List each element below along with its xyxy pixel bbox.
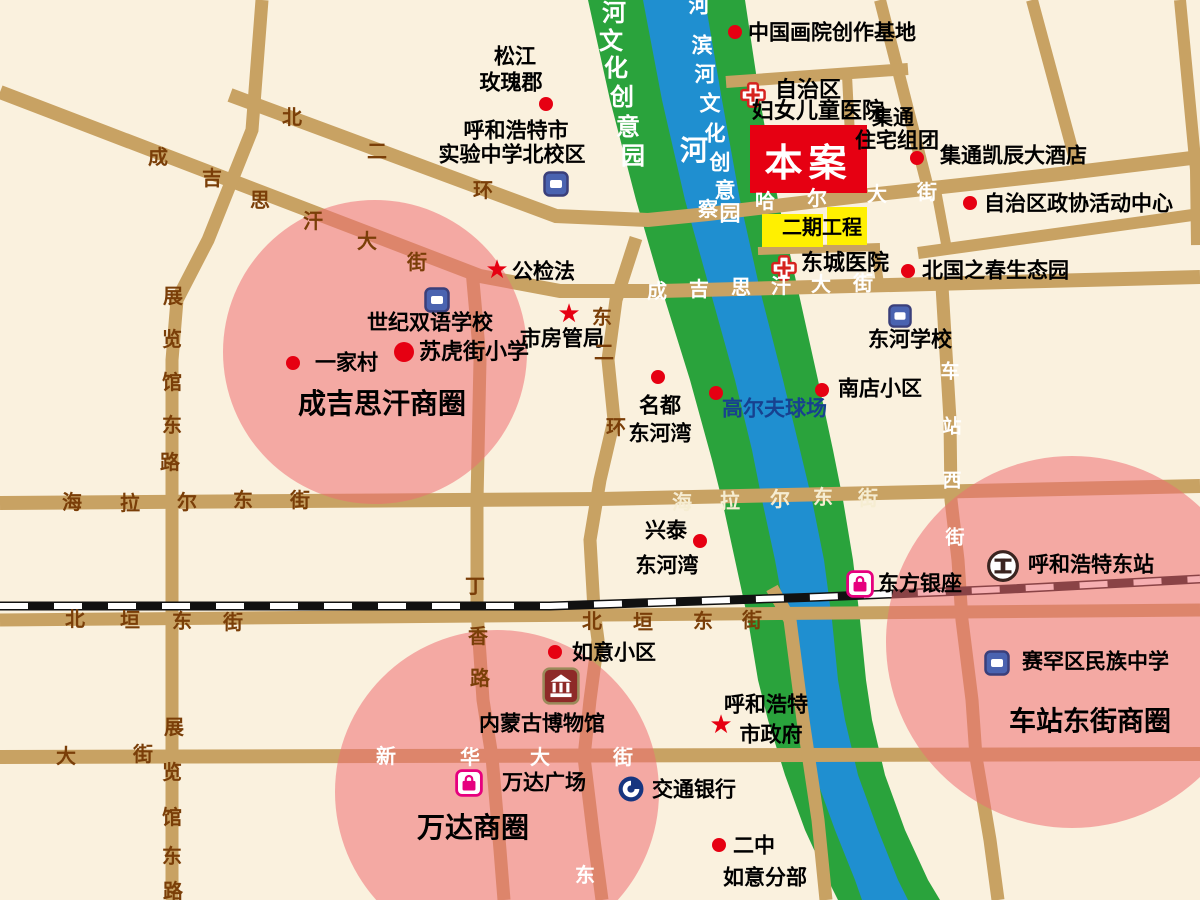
map-label: 东河湾 (636, 556, 699, 577)
map-label: 展 (164, 717, 184, 737)
map-label: 东 (813, 487, 833, 507)
map-label: 拉 (120, 493, 140, 513)
map-label: 新 (376, 746, 396, 766)
map-label: 馆 (162, 807, 182, 827)
star-marker[interactable]: ★ (557, 301, 580, 327)
map-label: 尔 (177, 492, 197, 512)
map-label: 呼和浩特东站 (1028, 555, 1154, 576)
project-site-block[interactable]: 本案 (750, 125, 867, 193)
map-label: 思 (250, 190, 270, 210)
map-label: 住宅组团 (855, 131, 939, 152)
shop-icon[interactable] (846, 570, 874, 598)
map-label: 哈 (755, 191, 775, 211)
poi-dot[interactable] (548, 645, 562, 659)
map-label: 尔 (807, 188, 827, 208)
map-label: 吉 (202, 168, 222, 188)
map-label: 路 (470, 668, 490, 688)
map-label: 路 (160, 452, 180, 472)
shop-icon[interactable] (455, 769, 483, 797)
school-icon[interactable] (424, 287, 450, 313)
poi-dot[interactable] (728, 25, 742, 39)
map-label: 内蒙古博物馆 (479, 714, 605, 735)
map-label: 一家村 (315, 353, 378, 374)
museum-icon (542, 667, 580, 705)
map-label: 尔 (770, 489, 790, 509)
map-label: 市房管局 (520, 329, 604, 350)
map-label: 名都 (639, 396, 681, 417)
map-label: 街 (742, 610, 762, 630)
star-marker[interactable]: ★ (485, 257, 508, 283)
map-label: 交通银行 (652, 780, 736, 801)
map-label: 文 (700, 94, 721, 115)
map-label: 东 (162, 846, 182, 866)
map-label: 呼和浩特市 (464, 121, 569, 142)
map-label: 华 (460, 747, 480, 767)
map-label: 街 (613, 747, 633, 767)
map-label: 二 (594, 342, 614, 362)
map-label: 汗 (771, 276, 791, 296)
map-label: 街 (133, 744, 153, 764)
bank-icon[interactable] (618, 776, 645, 803)
map-label: 街 (945, 529, 964, 548)
map-label: 成 (647, 281, 667, 301)
poi-dot[interactable] (712, 838, 726, 852)
map-label: 东河学校 (868, 330, 952, 351)
map-label: 如意小区 (572, 643, 656, 664)
map-label: 成 (148, 147, 168, 167)
map-label: 大 (56, 746, 76, 766)
museum-icon[interactable] (542, 667, 580, 705)
poi-dot[interactable] (963, 196, 977, 210)
map-label: 园 (720, 204, 741, 225)
map-label: 呼和浩特 (724, 695, 808, 716)
phase2-label: 二期工程 (782, 217, 862, 237)
map-label: 兴泰 (645, 521, 687, 542)
map-label: 北 (65, 609, 85, 629)
map-label: 垣 (633, 612, 653, 632)
school-icon (424, 287, 450, 313)
map-label: 街 (853, 273, 873, 293)
map-label: 海 (62, 492, 82, 512)
map-label: 河 (602, 1, 626, 25)
shopping-icon (846, 570, 874, 598)
map-label: 汗 (303, 211, 323, 231)
map-label: 馆 (162, 372, 182, 392)
map-label: 二 (367, 141, 387, 161)
map-label: 展 (163, 286, 183, 306)
map-label: 思 (731, 277, 751, 297)
map-label: 东 (592, 307, 612, 327)
train-icon[interactable] (986, 549, 1020, 583)
map-label: 东 (162, 415, 182, 435)
map-label: 东 (575, 865, 595, 885)
map-label: 实验中学北校区 (439, 145, 586, 166)
map-label: 妇女儿童医院 (752, 101, 884, 123)
map-label: 园 (621, 144, 645, 168)
shopping-icon (455, 769, 483, 797)
map-label: 西 (942, 472, 961, 491)
map-label: 东 (233, 490, 253, 510)
map-label: 意 (715, 181, 736, 202)
school-icon (543, 171, 569, 197)
map-label: 大 (357, 231, 377, 251)
map-label: 北国之春生态园 (922, 261, 1069, 282)
map-label: 环 (473, 180, 493, 200)
map-label: 意 (616, 115, 640, 139)
map-label: 街 (858, 488, 878, 508)
map-label: 北 (282, 107, 302, 127)
poi-dot[interactable] (901, 264, 915, 278)
map-label: 东方银座 (878, 574, 962, 595)
map-label: 如意分部 (723, 868, 807, 889)
map-label: 览 (162, 762, 182, 782)
poi-dot[interactable] (815, 383, 829, 397)
map-label: 丁 (465, 576, 485, 596)
map-label: 创 (710, 153, 731, 174)
business-circle-label: 万达商圈 (417, 814, 529, 842)
map-label: 高尔夫球场 (722, 399, 827, 420)
poi-dot[interactable] (539, 97, 553, 111)
map-label: 海 (672, 492, 692, 512)
school-icon (984, 650, 1010, 676)
map-label: 赛罕区民族中学 (1022, 652, 1169, 673)
train-station-icon (986, 549, 1020, 583)
poi-dot[interactable] (709, 386, 723, 400)
map-label: 集通凯辰大酒店 (940, 146, 1087, 167)
map-label: 东 (693, 611, 713, 631)
map-label: 环 (606, 417, 626, 437)
poi-dot[interactable] (910, 151, 924, 165)
poi-dot[interactable] (394, 342, 414, 362)
school-icon[interactable] (984, 650, 1010, 676)
map-label: 化 (604, 56, 628, 80)
map-label: 南店小区 (838, 379, 922, 400)
map-label: 世纪双语学校 (367, 313, 493, 334)
school-icon[interactable] (543, 171, 569, 197)
map-label: 河 (689, 0, 710, 17)
map-label: 香 (468, 626, 488, 646)
map-label: 东河湾 (629, 424, 692, 445)
map-label: 万达广场 (502, 773, 586, 794)
map-label: 大 (811, 274, 831, 294)
map-label: 自治区政协活动中心 (984, 194, 1173, 215)
map-label: 玫瑰郡 (480, 73, 543, 94)
map-label: 北 (582, 611, 602, 631)
map-label: 垣 (120, 610, 140, 630)
map-label: 站 (942, 418, 961, 437)
map-label: 览 (162, 329, 182, 349)
project-site-label: 本案 (764, 132, 852, 187)
bank-icon (618, 776, 645, 803)
map-label: 集通 (872, 108, 914, 129)
map-label: 车 (940, 363, 959, 382)
map-label: 街 (407, 252, 427, 272)
school-icon[interactable] (888, 304, 912, 328)
map-label: 市政府 (740, 725, 803, 746)
map-label: 河 (695, 65, 716, 86)
business-circle-label: 河 (680, 137, 708, 165)
map-label: 大 (867, 184, 887, 204)
map-label: 吉 (689, 279, 709, 299)
poi-dot[interactable] (693, 534, 707, 548)
map-label: 滨 (692, 36, 713, 57)
business-circle-label: 车站东街商圈 (1009, 709, 1171, 736)
poi-dot[interactable] (651, 370, 665, 384)
map-label: 街 (917, 182, 937, 202)
map-label: 二中 (733, 836, 775, 857)
map-label: 街 (290, 490, 310, 510)
map-label: 文 (599, 29, 623, 53)
poi-dot[interactable] (286, 356, 300, 370)
map-canvas[interactable]: 本案 二期工程 ★★★中国画院创作基地松江玫瑰郡呼和浩特市实验中学北校区自治区妇… (0, 0, 1200, 900)
map-label: 街 (223, 612, 243, 632)
map-label: 大 (530, 747, 550, 767)
map-label: 拉 (720, 491, 740, 511)
map-label: 东 (172, 611, 192, 631)
map-label: 创 (610, 85, 634, 109)
map-label: 公检法 (512, 262, 575, 283)
map-label: 路 (163, 881, 183, 900)
business-circle-label: 成吉思汗商圈 (298, 390, 466, 418)
map-label: 中国画院创作基地 (748, 23, 916, 44)
map-label: 松江 (494, 47, 536, 68)
map-label: 苏虎街小学 (419, 342, 529, 364)
school-icon (888, 304, 912, 328)
